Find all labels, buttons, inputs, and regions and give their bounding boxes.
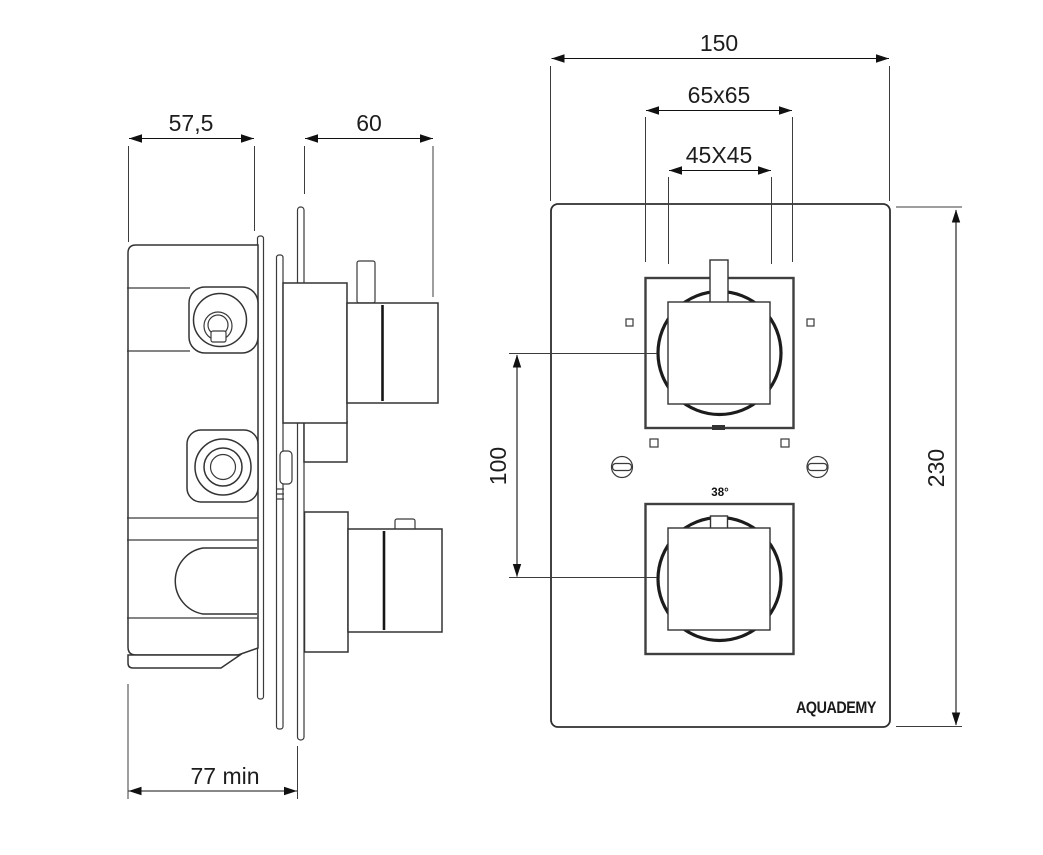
temp-38-label: 38°	[711, 487, 729, 499]
side-lower-knob	[348, 529, 442, 632]
side-upper-knob-tab	[357, 261, 375, 303]
front-fixing-screw-left	[612, 457, 633, 478]
technical-drawing-canvas: 38° AQUADEMY 57,5 60	[0, 0, 1043, 855]
side-view	[127, 207, 442, 740]
front-fixing-screw-right	[807, 457, 828, 478]
dim-handle-square-label: 45X45	[686, 142, 753, 168]
side-upper-knob	[347, 303, 438, 403]
side-lower-cartridge	[305, 512, 443, 652]
dim-width-label: 150	[700, 30, 738, 56]
dim-min-recess-label: 77 min	[190, 763, 259, 789]
side-body-foot	[128, 655, 240, 668]
front-bottom-handle-square	[668, 528, 770, 630]
side-upper-cartridge	[283, 261, 438, 462]
dim-handle-spacing-label: 100	[485, 447, 511, 485]
side-inlet-fitting-top	[189, 287, 258, 353]
front-bottom-knob-assembly	[646, 504, 794, 654]
dim-plate-square-label: 65x65	[688, 82, 751, 108]
dim-trim-depth-label: 60	[356, 110, 382, 136]
dim-rough-depth-label: 57,5	[169, 110, 214, 136]
dim-width: 150	[551, 30, 890, 201]
brand-logo: AQUADEMY	[796, 698, 877, 717]
drawing-svg: 38° AQUADEMY 57,5 60	[0, 0, 1043, 855]
dim-min-recess: 77 min	[128, 684, 298, 799]
front-top-knob-tab	[710, 260, 728, 306]
front-view: 38° AQUADEMY	[551, 204, 890, 727]
front-top-knob-assembly	[646, 260, 794, 430]
front-top-handle-square	[668, 302, 770, 404]
dim-rough-depth: 57,5	[129, 110, 255, 242]
dim-height: 230	[896, 207, 962, 727]
side-mounting-plate-front	[277, 255, 284, 729]
side-retaining-clip	[280, 451, 292, 484]
dim-height-label: 230	[923, 449, 949, 487]
front-top-index-mark	[712, 425, 725, 430]
side-outlet-fitting-bottom	[187, 430, 258, 502]
